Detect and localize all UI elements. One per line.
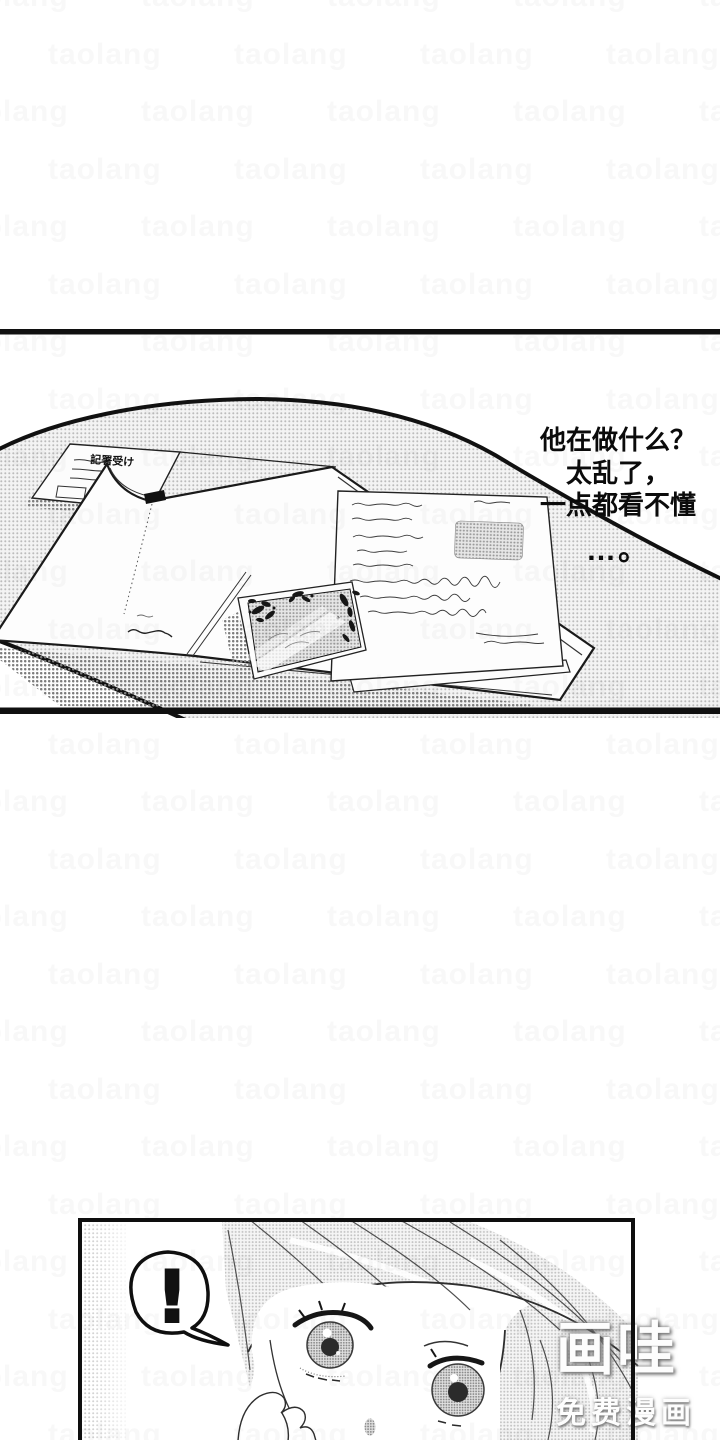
watermark-tile-word: taolang — [699, 95, 720, 129]
mouth — [365, 1419, 376, 1436]
watermark-tile-word: taolang — [606, 958, 720, 992]
watermark-tile-word: taolang — [0, 95, 69, 129]
panel-divider-top — [0, 329, 720, 335]
watermark-tile-word: taolang — [327, 1015, 441, 1049]
watermark-tile-word: taolang — [141, 0, 255, 14]
watermark-tile-word: taolang — [48, 153, 162, 187]
watermark-tile-word: taolang — [513, 0, 627, 14]
manga-page: 記署受け — [0, 0, 720, 1440]
watermark-tile-word: taolang — [513, 1130, 627, 1164]
watermark-tile-word: taolang — [513, 785, 627, 819]
watermark-tile-word: taolang — [513, 900, 627, 934]
watermark-tile-word: taolang — [327, 900, 441, 934]
dialogue-line: 一点都看不懂 — [506, 489, 720, 522]
watermark-tile-word: taolang — [234, 1073, 348, 1107]
watermark-tile-word: taolang — [141, 1130, 255, 1164]
watermark-tile-word: taolang — [234, 843, 348, 877]
watermark-tile-word: taolang — [234, 728, 348, 762]
dialogue-text: 他在做什么？ 太乱了， 一点都看不懂 …。 — [506, 424, 720, 564]
watermark-tile-word: taolang — [0, 1130, 69, 1164]
panel-face-scene: ! — [0, 1218, 720, 1440]
watermark-tile-word: taolang — [141, 1015, 255, 1049]
watermark-tile-word: taolang — [48, 1188, 162, 1222]
watermark-tile-word: taolang — [420, 1073, 534, 1107]
watermark-tile-word: taolang — [48, 728, 162, 762]
watermark-tile-word: taolang — [699, 1130, 720, 1164]
watermark-tile-word: taolang — [606, 1073, 720, 1107]
watermark-tile-word: taolang — [513, 1015, 627, 1049]
watermark-tile-word: taolang — [0, 785, 69, 819]
exclamation-text: ! — [156, 1255, 189, 1339]
watermark-tile-word: taolang — [141, 95, 255, 129]
watermark-tile-word: taolang — [513, 95, 627, 129]
watermark-tile-word: taolang — [48, 843, 162, 877]
watermark-tile-word: taolang — [234, 38, 348, 72]
watermark-tile-word: taolang — [606, 38, 720, 72]
watermark-tile-word: taolang — [327, 785, 441, 819]
watermark-tile-word: taolang — [48, 1073, 162, 1107]
watermark-tile-word: taolang — [0, 210, 69, 244]
watermark-tile-word: taolang — [0, 0, 69, 14]
watermark-tile-word: taolang — [420, 843, 534, 877]
dialogue-ellipsis: …。 — [506, 538, 720, 564]
watermark-tile-word: taolang — [234, 1188, 348, 1222]
watermark-tile-word: taolang — [234, 268, 348, 302]
watermark-tile-word: taolang — [327, 1130, 441, 1164]
watermark-tile-word: taolang — [699, 210, 720, 244]
watermark-tile-word: taolang — [0, 900, 69, 934]
watermark-tile-word: taolang — [699, 900, 720, 934]
watermark-tile-word: taolang — [699, 1015, 720, 1049]
watermark-tile-word: taolang — [141, 785, 255, 819]
watermark-tile-word: taolang — [0, 1015, 69, 1049]
watermark-tile-word: taolang — [420, 958, 534, 992]
watermark-tile-word: taolang — [48, 958, 162, 992]
dialogue-line: 太乱了， — [506, 457, 720, 490]
watermark-tile-word: taolang — [513, 210, 627, 244]
watermark-tile-word: taolang — [420, 268, 534, 302]
watermark-tile-word: taolang — [234, 958, 348, 992]
watermark-tile-word: taolang — [141, 210, 255, 244]
dialogue-line: 他在做什么？ — [506, 424, 720, 457]
watermark-tile-word: taolang — [606, 153, 720, 187]
panel-divider-bottom — [0, 708, 720, 715]
watermark-tile-word: taolang — [606, 728, 720, 762]
watermark-tile-word: taolang — [699, 0, 720, 14]
watermark-tile-word: taolang — [606, 843, 720, 877]
watermark-tile-word: taolang — [606, 1188, 720, 1222]
watermark-tile-word: taolang — [420, 728, 534, 762]
watermark-tile-word: taolang — [48, 38, 162, 72]
watermark-tile-word: taolang — [141, 900, 255, 934]
watermark-tile-word: taolang — [606, 268, 720, 302]
watermark-tile-word: taolang — [420, 153, 534, 187]
watermark-tile-word: taolang — [327, 210, 441, 244]
watermark-tile-word: taolang — [699, 785, 720, 819]
watermark-tile-word: taolang — [327, 0, 441, 14]
watermark-tile-word: taolang — [327, 95, 441, 129]
watermark-tile-word: taolang — [234, 153, 348, 187]
watermark-tile-word: taolang — [420, 38, 534, 72]
watermark-tile-word: taolang — [420, 1188, 534, 1222]
watermark-tile-word: taolang — [48, 268, 162, 302]
